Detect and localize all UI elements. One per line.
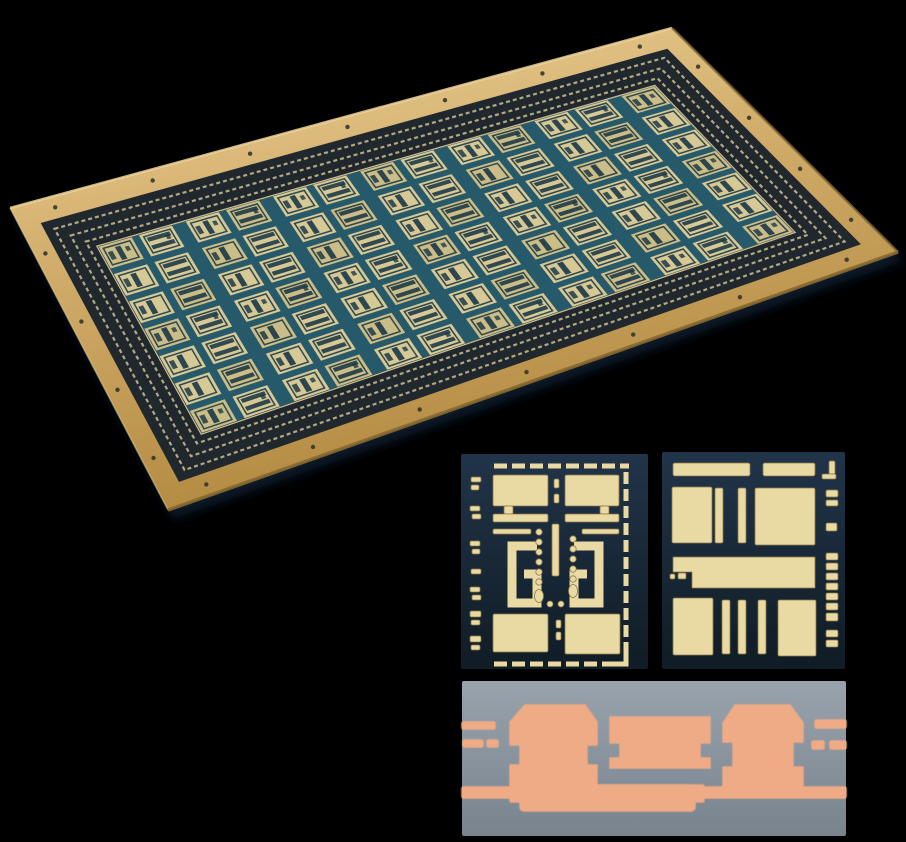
die-metal-shape <box>493 529 531 534</box>
die-metal-shape <box>763 463 815 476</box>
die-metal-shape <box>536 549 542 555</box>
panel-drill-hole <box>204 482 208 486</box>
figure-collage <box>0 0 906 842</box>
die-metal-shape <box>570 536 576 542</box>
panel-drill-hole <box>798 167 802 171</box>
panel-drill-hole <box>540 71 544 75</box>
die-metal-shape <box>470 636 481 642</box>
panel-drill-hole <box>638 44 642 48</box>
die-metal-shape <box>470 541 480 546</box>
die-metal-shape <box>826 563 838 570</box>
die-metal-shape <box>470 587 480 592</box>
die-metal-shape <box>673 598 713 655</box>
die-metal-shape <box>554 479 559 488</box>
die-metal-shape <box>826 583 838 590</box>
die-metal-shape <box>493 514 548 522</box>
die-metal-shape <box>472 595 481 600</box>
die-metal-shape <box>826 500 838 506</box>
die-metal-shape <box>565 614 620 654</box>
panel-drill-hole <box>747 116 751 120</box>
die-metal-shape <box>778 600 816 656</box>
die-metal-shape <box>493 614 548 652</box>
die-metal-shape <box>582 529 619 534</box>
panel-drill-hole <box>345 125 349 129</box>
die-metal-shape <box>536 529 542 535</box>
die-metal-shape <box>493 475 548 506</box>
die-metal-shape <box>471 620 480 625</box>
panel-drill-hole <box>443 98 447 102</box>
die-metal-shape <box>570 556 576 562</box>
cross-section-micrograph <box>462 681 846 836</box>
xsec-copper-shape <box>812 741 824 749</box>
panel-drill-hole <box>151 178 155 182</box>
die-metal-shape <box>536 569 542 575</box>
xsec-copper-shape <box>462 722 495 729</box>
die-metal-shape <box>547 601 553 607</box>
panel-drill-hole <box>311 445 315 449</box>
die-metal-shape <box>826 523 837 531</box>
xsec-copper-shape <box>510 705 597 791</box>
die-metal-shape <box>570 546 576 552</box>
die-metal-shape <box>471 569 481 574</box>
die-metal-shape <box>678 573 686 579</box>
die-metal-shape <box>536 539 542 545</box>
die-metal-shape <box>565 514 619 522</box>
panel-drill-hole <box>845 258 849 262</box>
xsec-copper-shape <box>610 717 710 768</box>
die-metal-shape <box>822 474 836 479</box>
panel-drill-hole <box>43 251 47 255</box>
xsec-copper-shape <box>723 705 803 791</box>
xsec-copper-shape-layer <box>462 705 846 811</box>
die-metal-shape <box>758 600 766 654</box>
die-metal-shape <box>715 488 723 543</box>
die-metal-shape <box>672 487 712 543</box>
die-metal-shape <box>722 600 730 654</box>
panel-drill-hole <box>248 152 252 156</box>
die-metal-shape <box>738 488 746 543</box>
die-photo-left <box>461 454 648 669</box>
die-metal-shape <box>472 549 480 554</box>
xsec-copper-shape <box>487 740 498 747</box>
die-metal-shape <box>826 593 838 600</box>
panel-drill-hole <box>738 295 742 299</box>
panel-drill-hole <box>79 319 83 323</box>
xsec-copper-shape <box>815 720 846 728</box>
panel-drill-hole <box>151 456 155 460</box>
die-metal-shape <box>552 524 559 576</box>
die-metal-shape <box>670 574 675 579</box>
die-metal-shape <box>738 600 746 654</box>
die-metal-shape <box>600 506 609 514</box>
die-metal-shape <box>536 579 542 585</box>
die-metal-shape <box>826 630 838 637</box>
die-metal-shape <box>536 559 542 565</box>
die-metal-shape <box>556 620 561 628</box>
die-metal-shape <box>826 613 838 621</box>
panel-drill-hole <box>849 218 853 222</box>
die-metal-shape <box>471 477 481 482</box>
die-metal-shape <box>556 632 561 640</box>
die-metal-shape <box>570 566 576 572</box>
die-metal-shape <box>504 506 513 514</box>
die-metal-shape <box>826 490 838 497</box>
die-metal-shape <box>673 557 815 588</box>
die-metal-shape <box>755 488 815 545</box>
die-metal-shape <box>826 553 838 560</box>
die-metal-shape <box>558 601 564 607</box>
xsec-copper-shape <box>830 741 846 749</box>
panel-drill-hole <box>696 65 700 69</box>
die-metal-shape <box>535 590 544 603</box>
panel-drill-hole <box>631 332 635 336</box>
panel-drill-hole <box>418 407 422 411</box>
xsec-copper-shape <box>463 740 483 747</box>
panel-drill-hole <box>115 388 119 392</box>
die-metal-shape <box>471 485 479 490</box>
die-metal-shape <box>470 506 480 511</box>
die-metal-shape <box>569 585 578 598</box>
die-metal-shape <box>673 463 750 476</box>
die-photo-right <box>662 452 845 669</box>
die-metal-shape <box>829 461 835 474</box>
scene-canvas <box>0 0 906 842</box>
die-metal-shape <box>565 475 619 506</box>
die-metal-shape <box>826 640 838 647</box>
die-metal-shape <box>570 576 576 582</box>
die-metal-shape <box>826 603 838 610</box>
die-metal-shape <box>470 611 481 617</box>
die-metal-shape <box>471 645 480 650</box>
die-metal-shape <box>554 494 559 503</box>
panel-drill-hole <box>53 205 57 209</box>
die-metal-shape <box>826 573 838 580</box>
panel-drill-hole <box>524 370 528 374</box>
die-metal-shape <box>472 514 481 519</box>
